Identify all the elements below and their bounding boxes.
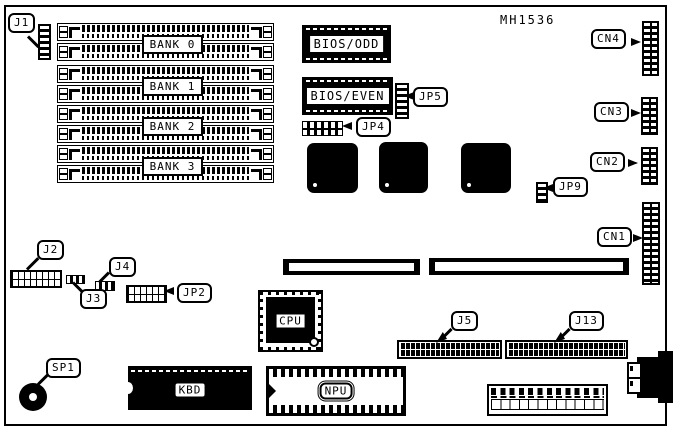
callout-j2-label: J2: [43, 243, 58, 256]
latch-icon: [69, 27, 80, 38]
callout-jp5: JP5: [413, 87, 448, 107]
jumper-j1: [38, 24, 51, 60]
npu-notch: [268, 383, 276, 399]
callout-sp1: SP1: [46, 358, 81, 378]
latch-icon: [251, 109, 262, 120]
latch-icon: [69, 129, 80, 140]
connector-cn1: [642, 202, 660, 285]
callout-cn1: CN1: [597, 227, 632, 247]
callout-jp9-arrow: [543, 184, 553, 192]
latch-icon: [69, 109, 80, 120]
chip-1: [307, 143, 358, 193]
callout-cn1-label: CN1: [603, 230, 626, 243]
latch-icon: [69, 169, 80, 180]
bank3-label: BANK 3: [142, 157, 203, 176]
simm-endcap: [262, 146, 273, 162]
simm-endcap: [262, 86, 273, 102]
jumper-jp4: [302, 121, 343, 136]
header-jp2: [126, 285, 167, 303]
simm-endcap: [262, 126, 273, 142]
simm-endcap: [58, 24, 69, 40]
simm-endcap: [58, 106, 69, 122]
jumper-jp5: [395, 83, 409, 119]
callout-cn2: CN2: [590, 152, 625, 172]
callout-jp4-arrow: [342, 122, 352, 130]
latch-icon: [69, 69, 80, 80]
latch-icon: [251, 149, 262, 160]
callout-j4: J4: [109, 257, 136, 277]
bios-odd-label: BIOS/ODD: [310, 36, 384, 52]
din-pin-block: [627, 377, 642, 394]
socket-pins: [269, 369, 403, 377]
connector-cn4: [642, 21, 659, 76]
latch-icon: [251, 69, 262, 80]
part-number: MH1536: [500, 13, 555, 27]
bios-odd-chip: BIOS/ODD: [302, 25, 391, 63]
callout-sp1-label: SP1: [52, 361, 75, 374]
latch-icon: [69, 89, 80, 100]
latch-icon: [251, 47, 262, 58]
simm-endcap: [58, 166, 69, 182]
header-j13: [505, 340, 628, 359]
chip-3: [461, 143, 511, 193]
cpu-socket: CPU: [258, 290, 323, 352]
callout-j1: J1: [8, 13, 35, 33]
simm-endcap: [58, 44, 69, 60]
power-sockets: [491, 399, 604, 410]
chip-pins: [131, 370, 249, 372]
latch-icon: [69, 149, 80, 160]
callout-cn3-arrow: [631, 109, 641, 117]
chip-pins: [306, 58, 387, 60]
callout-jp9: JP9: [553, 177, 588, 197]
motherboard-diagram: MH1536 J1 BANK 0 BANK 1 BANK 2 BANK 3 BI…: [0, 0, 673, 431]
callout-jp4: JP4: [356, 117, 391, 137]
latch-icon: [251, 169, 262, 180]
kbd-notch: [123, 382, 133, 394]
callout-jp5-label: JP5: [419, 90, 442, 103]
callout-jp9-label: JP9: [559, 180, 582, 193]
npu-label: NPU: [320, 383, 353, 400]
callout-j4-label: J4: [115, 260, 130, 273]
callout-cn3-label: CN3: [600, 105, 623, 118]
callout-cn1-arrow: [633, 234, 643, 242]
latch-icon: [69, 47, 80, 58]
callout-j13-label: J13: [575, 314, 598, 327]
callout-jp2-label: JP2: [183, 286, 206, 299]
simm-endcap: [58, 86, 69, 102]
chip-pins: [306, 110, 389, 112]
callout-jp2-arrow: [164, 287, 174, 295]
callout-cn2-arrow: [628, 159, 638, 167]
connector-cn3: [641, 97, 658, 135]
npu-socket: NPU: [266, 366, 406, 416]
callout-j13: J13: [569, 311, 604, 331]
callout-jp4-label: JP4: [362, 120, 385, 133]
bus-slot-2: [429, 258, 629, 275]
callout-cn4: CN4: [591, 29, 626, 49]
chip-pins: [306, 28, 387, 30]
chip-2: [379, 142, 428, 193]
chip-pins: [306, 80, 389, 82]
latch-icon: [251, 129, 262, 140]
bank0-label: BANK 0: [142, 35, 203, 54]
simm-endcap: [262, 66, 273, 82]
simm-endcap: [262, 166, 273, 182]
simm-endcap: [58, 66, 69, 82]
power-connector: [487, 384, 608, 416]
speaker-icon: [19, 383, 47, 411]
callout-jp2: JP2: [177, 283, 212, 303]
bios-even-chip: BIOS/EVEN: [302, 77, 393, 115]
cpu-pin1-notch: [309, 337, 319, 347]
kbd-label: KBD: [175, 383, 206, 398]
callout-j1-label: J1: [14, 16, 29, 29]
bios-even-label: BIOS/EVEN: [306, 88, 388, 104]
kbd-chip: KBD: [128, 366, 252, 410]
callout-j2: J2: [37, 240, 64, 260]
callout-j3: J3: [80, 289, 107, 309]
header-j2: [10, 270, 62, 288]
callout-j3-label: J3: [86, 292, 101, 305]
latch-icon: [251, 89, 262, 100]
simm-endcap: [58, 146, 69, 162]
power-pins: [491, 388, 604, 395]
simm-endcap: [58, 126, 69, 142]
latch-icon: [251, 27, 262, 38]
simm-endcap: [262, 24, 273, 40]
socket-pins: [269, 405, 403, 413]
callout-j5: J5: [451, 311, 478, 331]
header-j5: [397, 340, 502, 359]
cpu-label: CPU: [276, 315, 305, 328]
simm-endcap: [262, 44, 273, 60]
bank2-label: BANK 2: [142, 117, 203, 136]
bank1-label: BANK 1: [142, 77, 203, 96]
callout-cn2-label: CN2: [596, 155, 619, 168]
callout-cn3: CN3: [594, 102, 629, 122]
connector-cn2: [641, 147, 658, 185]
callout-cn4-arrow: [631, 38, 641, 46]
callout-cn4-label: CN4: [597, 32, 620, 45]
callout-j5-label: J5: [457, 314, 472, 327]
power-pin-row: [491, 396, 604, 398]
simm-endcap: [262, 106, 273, 122]
bus-slot-1: [283, 259, 420, 275]
